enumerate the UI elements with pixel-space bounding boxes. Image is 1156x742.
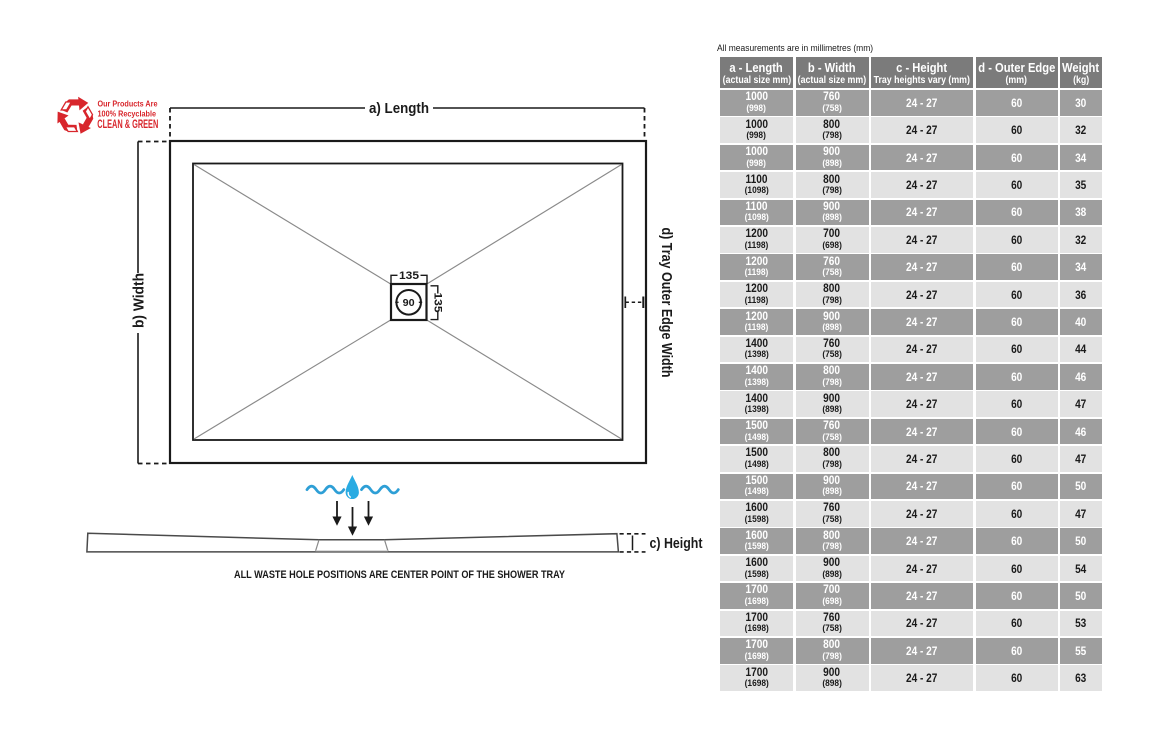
svg-text:100% Recyclable: 100% Recyclable bbox=[98, 108, 157, 118]
svg-text:a) Length: a) Length bbox=[369, 101, 429, 117]
svg-text:135: 135 bbox=[431, 293, 443, 313]
svg-text:b) Width: b) Width bbox=[132, 273, 148, 328]
svg-text:ALL WASTE HOLE POSITIONS ARE C: ALL WASTE HOLE POSITIONS ARE CENTER POIN… bbox=[234, 569, 566, 581]
svg-text:Our Products Are: Our Products Are bbox=[98, 98, 158, 108]
svg-text:90: 90 bbox=[403, 297, 415, 309]
svg-text:d) Tray Outer Edge Width: d) Tray Outer Edge Width bbox=[658, 228, 674, 378]
svg-text:135: 135 bbox=[399, 270, 419, 282]
svg-text:CLEAN & GREEN: CLEAN & GREEN bbox=[97, 119, 158, 131]
svg-text:c) Height: c) Height bbox=[650, 536, 703, 552]
